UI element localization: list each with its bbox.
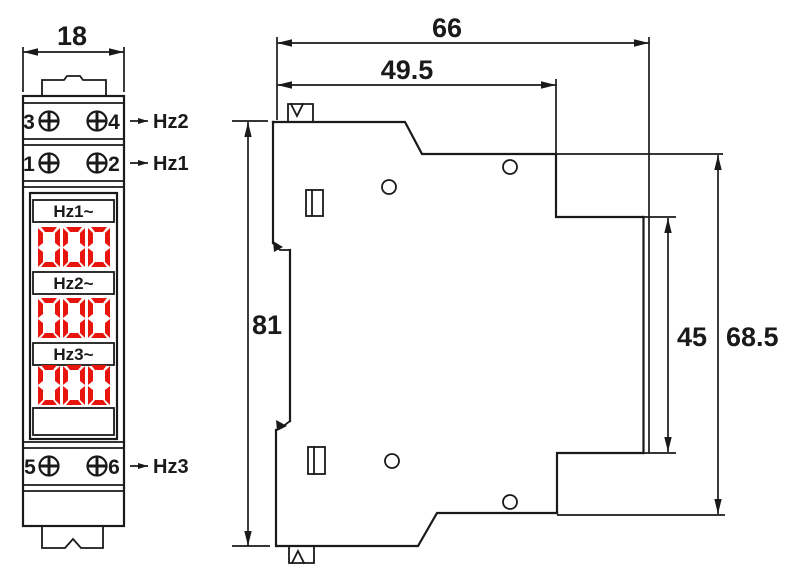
- front-view: 18 3 4 1 2 5 6 H: [23, 21, 189, 548]
- terminal-screw: [88, 154, 107, 173]
- terminal-screw: [40, 457, 59, 476]
- clip-pawl: [276, 420, 287, 431]
- clip-slot: [308, 447, 325, 474]
- terminal-number-3: 3: [23, 111, 35, 134]
- mounting-hole: [503, 495, 517, 509]
- technical-drawing: 18 3 4 1 2 5 6 H: [0, 0, 790, 578]
- side-view: 66 49.5 81 45 68.5: [232, 13, 779, 563]
- side-bottom-step: [557, 453, 643, 513]
- dim-label-68-5: 68.5: [726, 322, 779, 352]
- din-clip-tab-notch: [291, 104, 303, 116]
- terminal-screw: [88, 457, 107, 476]
- mounting-hole: [382, 180, 396, 194]
- signal-label-hz2: Hz2: [153, 111, 189, 133]
- dim-label-49-5: 49.5: [381, 55, 434, 85]
- terminal-screw: [40, 112, 59, 131]
- signal-label-hz3: Hz3: [153, 456, 189, 478]
- side-bottom-edge: [277, 513, 557, 546]
- side-top-edge: [273, 122, 556, 154]
- seven-segment-digits: [38, 227, 110, 267]
- terminal-number-6: 6: [108, 456, 120, 479]
- display-row-label: Hz2~: [53, 274, 93, 293]
- display-panel: Hz1~ Hz2~ Hz3~: [30, 193, 117, 439]
- dim-label-18: 18: [57, 21, 87, 51]
- display-row-label: Hz1~: [53, 202, 93, 221]
- dim-label-66: 66: [432, 13, 462, 43]
- terminal-number-5: 5: [24, 456, 36, 479]
- bottom-mount-tab: [42, 526, 103, 548]
- top-mount-tab: [42, 76, 106, 96]
- terminal-screw: [40, 154, 59, 173]
- seven-segment-digits: [38, 298, 110, 338]
- mounting-hole: [503, 160, 517, 174]
- signal-label-hz1: Hz1: [153, 153, 189, 175]
- display-blank-box: [33, 408, 114, 435]
- dim-front-width: 18: [23, 21, 124, 92]
- dim-label-45: 45: [677, 322, 707, 352]
- seven-segment-digits: [38, 365, 110, 405]
- mounting-hole: [385, 454, 399, 468]
- terminal-number-2: 2: [108, 153, 120, 176]
- dim-din-height: 45: [643, 217, 707, 453]
- drawing-svg: 18 3 4 1 2 5 6 H: [0, 0, 790, 578]
- terminal-screw: [88, 112, 107, 131]
- terminal-number-4: 4: [108, 111, 120, 134]
- dim-total-depth: 66: [277, 13, 649, 453]
- clip-slot: [306, 190, 323, 216]
- display-row-label: Hz3~: [53, 345, 93, 364]
- dim-front-height: 81: [232, 121, 282, 546]
- terminal-number-1: 1: [23, 153, 35, 176]
- din-clip-tab-notch: [292, 551, 304, 563]
- dim-front-depth: 49.5: [277, 55, 556, 154]
- side-top-step: [556, 154, 643, 217]
- dim-label-81: 81: [252, 310, 282, 340]
